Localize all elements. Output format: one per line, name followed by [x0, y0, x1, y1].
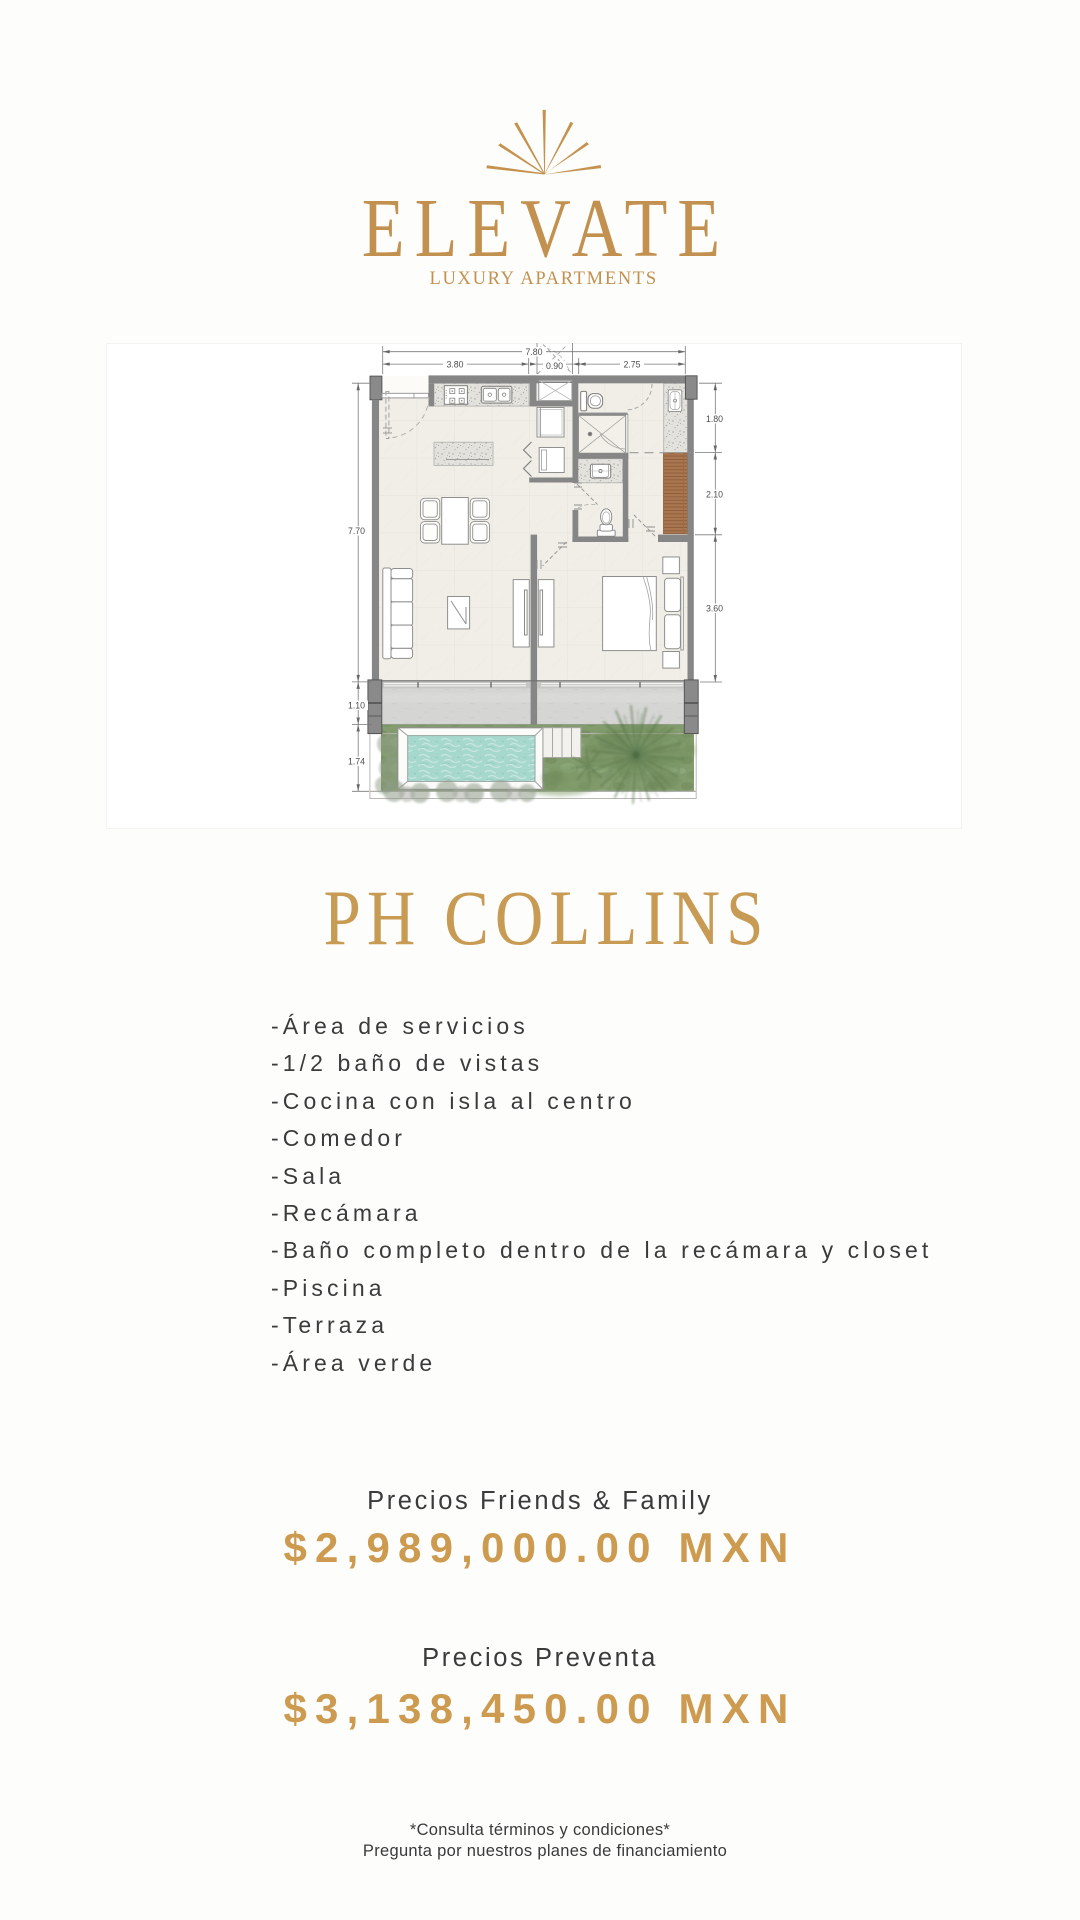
svg-text:1.10: 1.10	[348, 701, 365, 711]
svg-text:3.60: 3.60	[706, 604, 723, 614]
svg-text:1.80: 1.80	[706, 414, 723, 424]
svg-text:7.80: 7.80	[525, 347, 542, 357]
svg-text:1.74: 1.74	[348, 757, 365, 767]
svg-text:7.70: 7.70	[348, 526, 365, 536]
svg-text:3.80: 3.80	[446, 360, 463, 370]
svg-text:0.90: 0.90	[546, 361, 563, 371]
svg-text:2.75: 2.75	[623, 360, 640, 370]
svg-text:2.10: 2.10	[706, 490, 723, 500]
